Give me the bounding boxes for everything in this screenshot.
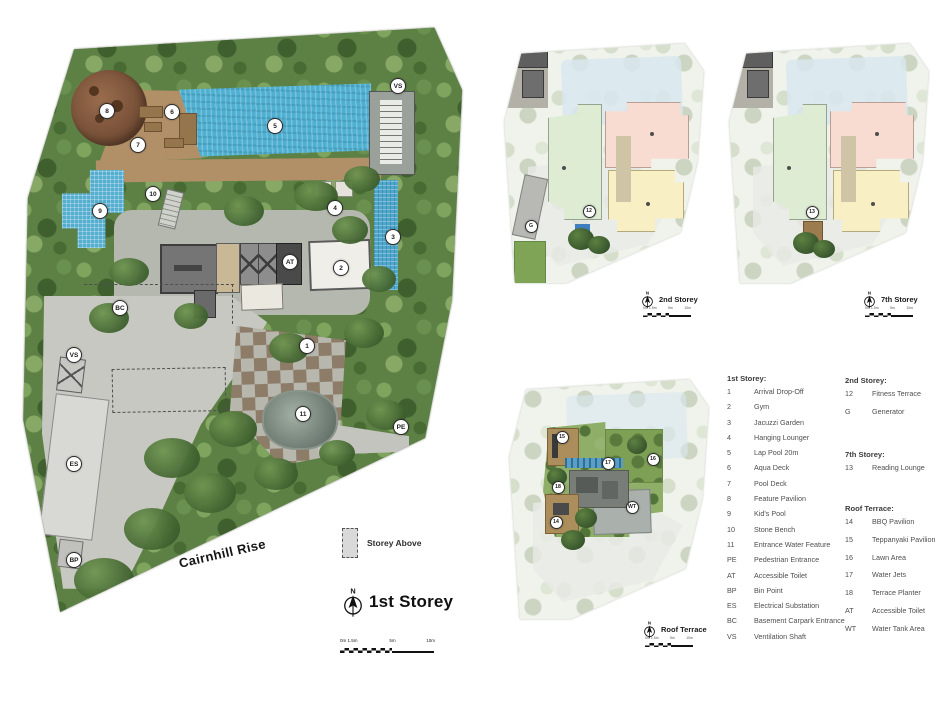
legend-item-code: 10	[727, 525, 754, 534]
plan-marker-18: 18	[552, 481, 565, 494]
roof-terrace-title: Roof Terrace	[661, 625, 707, 634]
legend-item-code: 8	[727, 494, 754, 503]
legend-items: 1Arrival Drop-Off2Gym3Jacuzzi Garden4Han…	[727, 387, 845, 647]
legend-item-label: Accessible Toilet	[754, 571, 845, 580]
scale-labels: 0m 1.5m 5m 10m	[865, 306, 913, 312]
legend-item-code: 5	[727, 448, 754, 457]
legend-item: VSVentilation Shaft	[727, 632, 845, 647]
scale-bar	[340, 648, 434, 653]
legend-item: ATAccessible Toilet	[845, 606, 943, 624]
legend-item: 9Kid's Pool	[727, 509, 845, 524]
legend-first-storey: 1st Storey: 1Arrival Drop-Off2Gym3Jacuzz…	[727, 374, 845, 647]
legend-item-code: 17	[845, 570, 872, 579]
legend-item: 7Pool Deck	[727, 479, 845, 494]
legend-item-label: Hanging Lounger	[754, 433, 845, 442]
plan-marker-bp: BP	[66, 552, 82, 568]
plan-marker-16: 16	[647, 453, 660, 466]
legend-item: BCBasement Carpark Entrance	[727, 616, 845, 631]
legend-item-code: 14	[845, 517, 872, 526]
legend-second-storey: 2nd Storey: 12Fitness TerraceGGenerator	[845, 376, 943, 425]
legend-roof-terrace: Roof Terrace: 14BBQ Pavilion15Teppanyaki…	[845, 504, 943, 642]
legend-item-code: PE	[727, 555, 754, 564]
legend-heading: 7th Storey:	[845, 450, 943, 459]
legend-item-code: 13	[845, 463, 872, 472]
legend-item: 12Fitness Terrace	[845, 389, 943, 407]
legend-item-label: Fitness Terrace	[872, 389, 943, 398]
plan-marker-11: 11	[295, 406, 311, 422]
plan-marker-wt: WT	[626, 501, 639, 514]
legend-item-label: Pedestrian Entrance	[754, 555, 845, 564]
legend-item-label: Water Tank Area	[872, 624, 943, 633]
legend-item: 1Arrival Drop-Off	[727, 387, 845, 402]
legend-heading: 2nd Storey:	[845, 376, 943, 385]
legend-item-label: Ventilation Shaft	[754, 632, 845, 641]
roof-terrace-plan: 1517161814WT	[503, 372, 715, 624]
legend-item-code: 7	[727, 479, 754, 488]
legend-item-label: Terrace Planter	[872, 588, 943, 597]
legend-item-code: G	[845, 407, 872, 416]
legend-item-code: ES	[727, 601, 754, 610]
svg-text:N: N	[646, 291, 649, 296]
legend-item-label: Jacuzzi Garden	[754, 418, 845, 427]
svg-text:N: N	[350, 587, 355, 596]
plan-marker-6: 6	[164, 104, 180, 120]
plan-marker-12: 12	[583, 205, 596, 218]
main-plan-title-row: N 1st Storey	[342, 586, 453, 618]
legend-item-label: Reading Lounge	[872, 463, 943, 472]
legend-heading: 1st Storey:	[727, 374, 845, 383]
plan-marker-5: 5	[267, 118, 283, 134]
legend-item-label: Bin Point	[754, 586, 845, 595]
plan-markers: 12G	[498, 36, 710, 288]
plan-marker-vs: VS	[66, 347, 82, 363]
legend-item-code: BP	[727, 586, 754, 595]
second-storey-plan: 12G	[498, 36, 710, 288]
legend-item: WTWater Tank Area	[845, 624, 943, 642]
legend-items: 13Reading Lounge	[845, 463, 943, 481]
storey-above-swatch	[342, 528, 358, 558]
plan-marker-bc: BC	[112, 300, 128, 316]
legend-item: BPBin Point	[727, 586, 845, 601]
legend-item-code: AT	[727, 571, 754, 580]
legend-item: 8Feature Pavilion	[727, 494, 845, 509]
scale-labels: 0m 1.5m 5m 10m	[645, 636, 693, 642]
legend-items: 14BBQ Pavilion15Teppanyaki Pavilion16Law…	[845, 517, 943, 642]
legend-item: ATAccessible Toilet	[727, 571, 845, 586]
legend-item: 13Reading Lounge	[845, 463, 943, 481]
legend-item-label: Feature Pavilion	[754, 494, 845, 503]
legend-item-label: Electrical Substation	[754, 601, 845, 610]
legend-item-code: AT	[845, 606, 872, 615]
plan-marker-3: 3	[385, 229, 401, 245]
plan-marker-es: ES	[66, 456, 82, 472]
plan-marker-8: 8	[99, 103, 115, 119]
plan-marker-13: 13	[806, 206, 819, 219]
legend-item: 14BBQ Pavilion	[845, 517, 943, 535]
plan-marker-g: G	[525, 220, 538, 233]
scale-bar	[645, 643, 693, 647]
legend-heading: Roof Terrace:	[845, 504, 943, 513]
legend-item-label: Basement Carpark Entrance	[754, 616, 845, 625]
legend-item: 6Aqua Deck	[727, 463, 845, 478]
legend-items: 12Fitness TerraceGGenerator	[845, 389, 943, 425]
legend-item-code: 15	[845, 535, 872, 544]
legend-item-label: Entrance Water Feature	[754, 540, 845, 549]
site-plan-page: { "main_plan": { "title": "1st Storey", …	[0, 0, 943, 717]
plan-marker-1: 1	[299, 338, 315, 354]
main-plan-title: 1st Storey	[369, 592, 453, 612]
legend-item-code: 9	[727, 509, 754, 518]
legend-item-label: Aqua Deck	[754, 463, 845, 472]
legend-item-label: Teppanyaki Pavilion	[872, 535, 943, 544]
legend-item: 2Gym	[727, 402, 845, 417]
second-storey-title: 2nd Storey	[659, 295, 698, 304]
legend-item-code: 6	[727, 463, 754, 472]
legend-item-code: 2	[727, 402, 754, 411]
storey-above-legend: Storey Above	[342, 528, 421, 558]
plan-marker-17: 17	[602, 457, 615, 470]
legend-item-label: Pool Deck	[754, 479, 845, 488]
legend-seventh-storey: 7th Storey: 13Reading Lounge	[845, 450, 943, 481]
plan-marker-9: 9	[92, 203, 108, 219]
plan-marker-vs: VS	[390, 78, 406, 94]
legend-item: 10Stone Bench	[727, 525, 845, 540]
seventh-storey-plan: 13	[723, 36, 935, 288]
scale-labels: 0m 1.5m 5m 10m	[643, 306, 691, 312]
north-compass-icon: N	[342, 586, 364, 618]
legend-item-code: 4	[727, 433, 754, 442]
svg-text:N: N	[648, 621, 651, 626]
legend-item-label: Generator	[872, 407, 943, 416]
legend-item: PEPedestrian Entrance	[727, 555, 845, 570]
legend-item: 16Lawn Area	[845, 553, 943, 571]
legend-item: 3Jacuzzi Garden	[727, 418, 845, 433]
scale-bar	[643, 313, 691, 317]
legend-item: 11Entrance Water Feature	[727, 540, 845, 555]
scale-labels: 0m 1.5m 5m 10m	[340, 638, 435, 644]
legend-item-label: Gym	[754, 402, 845, 411]
plan-marker-4: 4	[327, 200, 343, 216]
plan-markers: 13	[723, 36, 935, 288]
legend-item-label: Water Jets	[872, 570, 943, 579]
legend-item: 4Hanging Lounger	[727, 433, 845, 448]
scale-bar	[865, 313, 913, 317]
legend-item-code: 12	[845, 389, 872, 398]
legend-item-label: BBQ Pavilion	[872, 517, 943, 526]
plan-marker-pe: PE	[393, 419, 409, 435]
storey-above-label: Storey Above	[367, 538, 421, 548]
legend-item: 17Water Jets	[845, 570, 943, 588]
legend-item-label: Kid's Pool	[754, 509, 845, 518]
legend-item-label: Accessible Toilet	[872, 606, 943, 615]
plan-markers: 1517161814WT	[503, 372, 715, 624]
legend-item-label: Stone Bench	[754, 525, 845, 534]
svg-text:N: N	[868, 291, 871, 296]
legend-item-code: WT	[845, 624, 872, 633]
legend-item: 15Teppanyaki Pavilion	[845, 535, 943, 553]
legend-item-code: 1	[727, 387, 754, 396]
plan-marker-14: 14	[550, 516, 563, 529]
plan-marker-10: 10	[145, 186, 161, 202]
legend-item: GGenerator	[845, 407, 943, 425]
plan-marker-7: 7	[130, 137, 146, 153]
legend-item-label: Lawn Area	[872, 553, 943, 562]
legend-item-code: 16	[845, 553, 872, 562]
legend-item-label: Arrival Drop-Off	[754, 387, 845, 396]
legend-item-code: 11	[727, 540, 754, 549]
legend-item: 18Terrace Planter	[845, 588, 943, 606]
legend-item-code: VS	[727, 632, 754, 641]
legend-item-code: 3	[727, 418, 754, 427]
seventh-storey-title: 7th Storey	[881, 295, 918, 304]
legend-item-code: 18	[845, 588, 872, 597]
legend-item-label: Lap Pool 20m	[754, 448, 845, 457]
plan-marker-15: 15	[556, 431, 569, 444]
plan-marker-2: 2	[333, 260, 349, 276]
legend-item: 5Lap Pool 20m	[727, 448, 845, 463]
legend-item-code: BC	[727, 616, 754, 625]
legend-item: ESElectrical Substation	[727, 601, 845, 616]
plan-marker-at: AT	[282, 254, 298, 270]
